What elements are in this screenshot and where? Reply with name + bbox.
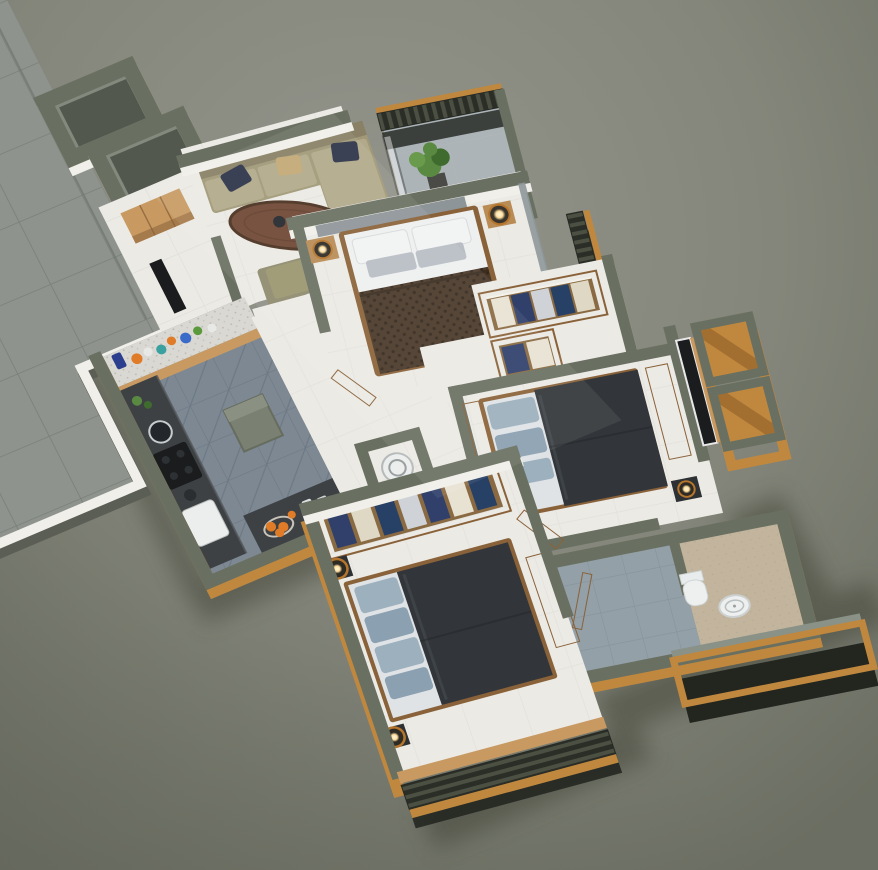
floor-plan-render	[0, 0, 878, 870]
floor-plan-stage: { "scene": { "kind": "isometric-3d-floor…	[0, 0, 878, 870]
